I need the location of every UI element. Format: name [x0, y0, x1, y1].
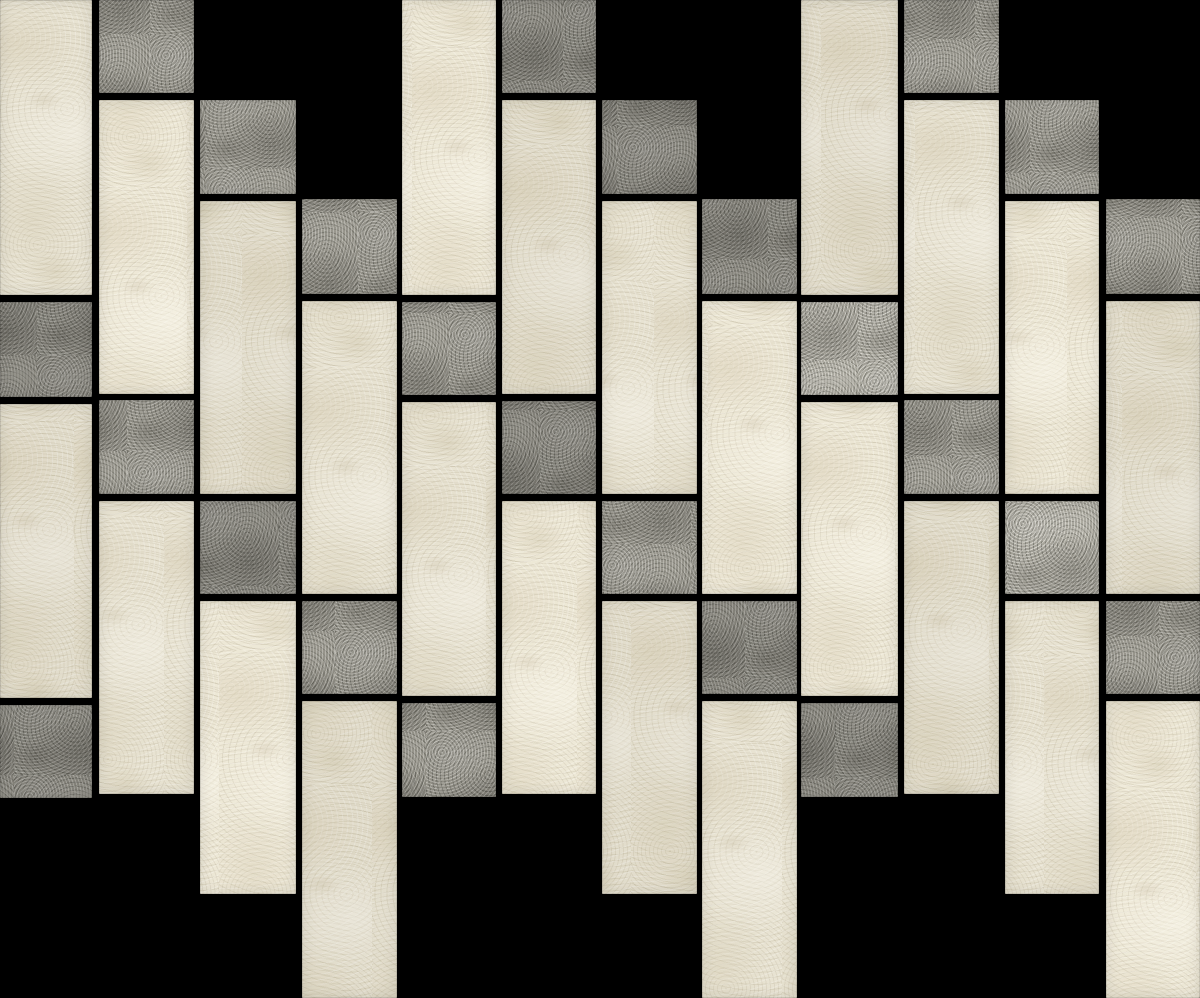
mosaic-tile-gray-square [0, 705, 92, 798]
mosaic-tile-gray-square [1005, 501, 1099, 594]
mosaic-tile-beige-brick [904, 501, 999, 794]
mosaic-tile-gray-square [402, 703, 496, 797]
mosaic-tile-gray-square [801, 703, 898, 797]
mosaic-tile-beige-brick [602, 601, 697, 894]
mosaic-tile-gray-square [602, 100, 697, 194]
mosaic-tile-beige-brick [99, 501, 194, 794]
mosaic-tile-gray-square [99, 0, 194, 93]
mosaic-tile-beige-brick [502, 100, 596, 394]
mosaic-tile-beige-brick [1005, 601, 1099, 894]
mosaic-tile-gray-square [200, 100, 296, 194]
mosaic-tile-gray-square [0, 302, 92, 397]
mosaic-tile-gray-square [702, 601, 797, 694]
mosaic-tile-gray-square [1106, 601, 1200, 694]
mosaic-tile-gray-square [702, 199, 797, 294]
mosaic-tile-gray-square [904, 400, 999, 494]
mosaic-tile-beige-brick [302, 301, 397, 594]
mosaic-tile-beige-brick [0, 0, 92, 295]
mosaic-tile-gray-square [602, 501, 697, 594]
mosaic-tile-beige-brick [702, 701, 797, 998]
mosaic-tile-beige-brick [1106, 301, 1200, 594]
mosaic-tile-beige-brick [402, 402, 496, 696]
mosaic-tile-beige-brick [801, 0, 898, 295]
mosaic-tile-beige-brick [1106, 701, 1200, 998]
mosaic-tile-gray-square [801, 302, 898, 395]
mosaic-tile-beige-brick [99, 100, 194, 394]
mosaic-tile-gray-square [904, 0, 999, 93]
mosaic-tile-beige-brick [602, 201, 697, 494]
mosaic-tile-beige-brick [702, 301, 797, 594]
mosaic-tile-beige-brick [801, 402, 898, 696]
mosaic-tile-beige-brick [1005, 201, 1099, 494]
mosaic-tile-gray-square [502, 401, 596, 494]
mosaic-tile-gray-square [302, 199, 397, 294]
mosaic-tile-beige-brick [200, 601, 296, 894]
mosaic-tile-gray-square [99, 400, 194, 494]
mosaic-tile-gray-square [1005, 100, 1099, 194]
mosaic-tile-gray-square [302, 601, 397, 694]
mosaic-tile-gray-square [402, 302, 496, 395]
mosaic-tile-beige-brick [302, 701, 397, 998]
mosaic-tile-beige-brick [0, 404, 92, 698]
mosaic-tile-gray-square [200, 501, 296, 594]
mosaic-tile-beige-brick [200, 201, 296, 494]
mosaic-tile-beige-brick [502, 501, 596, 794]
mosaic-tile-sheet [0, 0, 1200, 998]
mosaic-tile-gray-square [502, 0, 596, 93]
mosaic-tile-gray-square [1106, 199, 1200, 294]
mosaic-tile-beige-brick [402, 0, 496, 295]
mosaic-tile-beige-brick [904, 100, 999, 394]
